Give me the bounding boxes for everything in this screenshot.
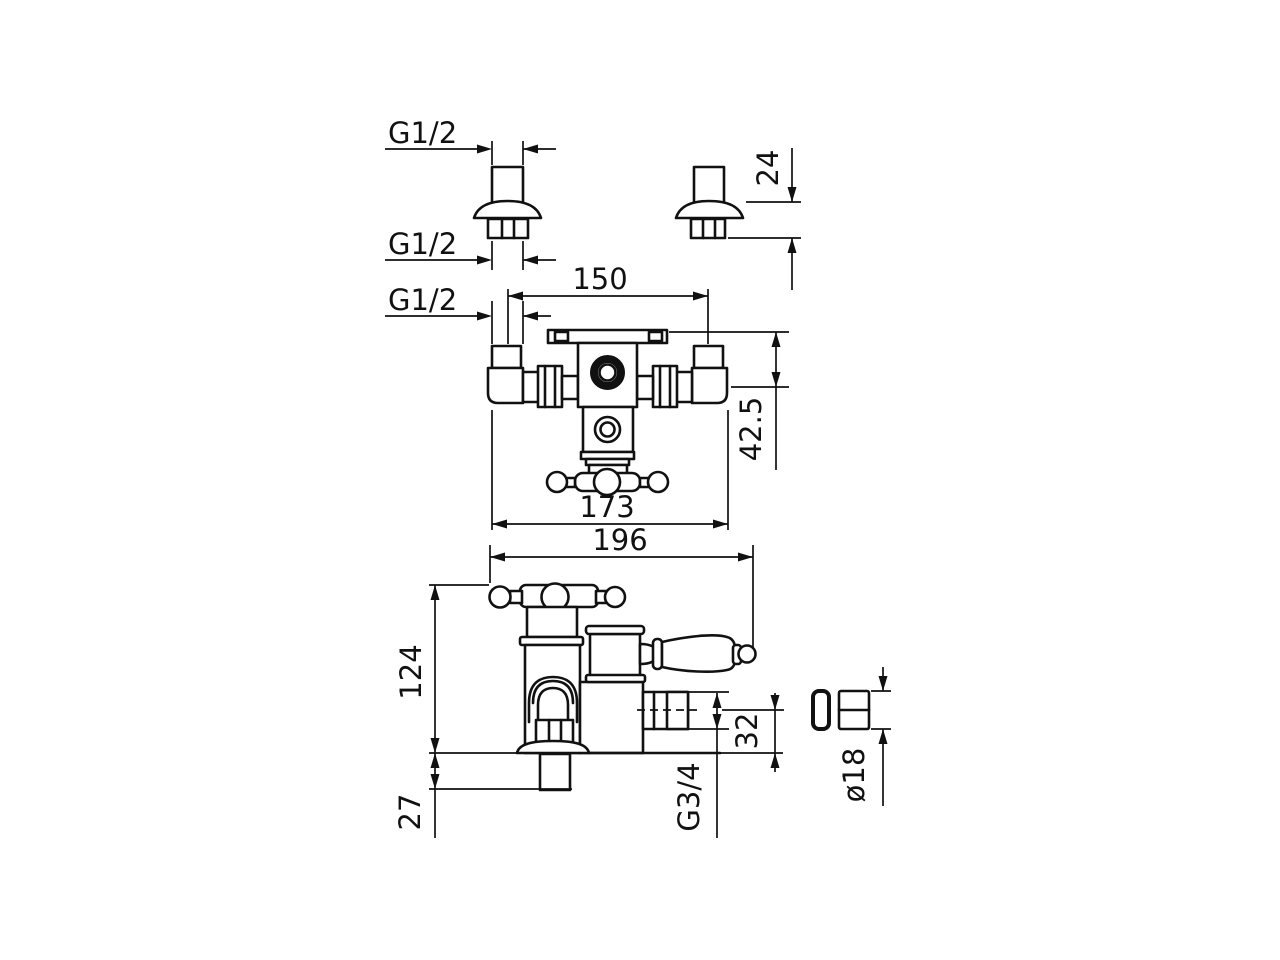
label-tail-length: 27	[393, 794, 427, 831]
label-inlet-thread-nut: G1/2	[388, 227, 457, 261]
dim-nut-diameter: ø18	[837, 667, 891, 806]
view-side: 196	[393, 523, 891, 838]
label-outlet-thread: G3/4	[672, 762, 706, 831]
label-inlet-thread-top: G1/2	[388, 116, 457, 150]
label-nut-diameter: ø18	[837, 748, 871, 803]
label-inlet-thread-front: G1/2	[388, 283, 457, 317]
dim-inlet-thread-nut: G1/2	[385, 227, 556, 270]
label-body-depth: 42.5	[734, 397, 768, 462]
technical-drawing-page: G1/2 G1/2 24	[0, 0, 1280, 960]
label-body-width: 173	[579, 490, 634, 524]
label-overall-height: 124	[394, 644, 428, 699]
washer-and-nut	[813, 691, 869, 729]
label-outlet-offset: 32	[730, 713, 764, 750]
union-left	[474, 167, 541, 238]
side-body	[429, 626, 783, 790]
label-overall-width: 196	[592, 523, 647, 557]
label-union-height: 24	[751, 150, 785, 187]
plan-body	[488, 330, 727, 495]
dim-inlet-thread-top: G1/2	[385, 116, 556, 165]
union-right	[676, 167, 743, 238]
dim-overall-height: 124	[394, 585, 489, 753]
dim-inlet-thread-front: G1/2	[385, 283, 551, 344]
faucet-drawing: G1/2 G1/2 24	[0, 0, 1280, 960]
view-plan: G1/2 150	[385, 262, 789, 530]
dim-outlet-offset: 32	[722, 693, 784, 772]
label-inlet-spacing: 150	[572, 262, 627, 296]
